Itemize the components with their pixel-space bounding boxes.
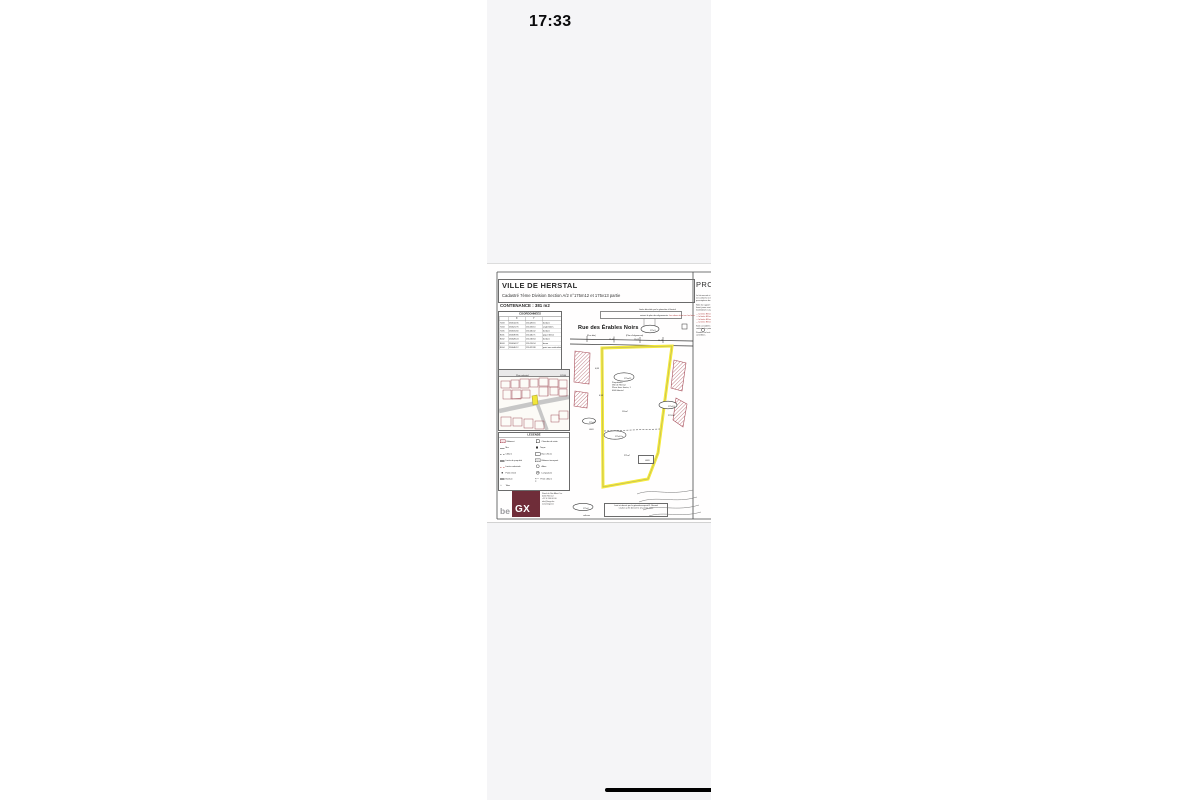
road-dimension: 14,22 xyxy=(658,339,663,342)
coord-remark: bordure xyxy=(542,329,561,333)
legend-item: ×—×Fil de clôture xyxy=(534,476,569,482)
logo-mark: GX xyxy=(515,504,530,515)
coord-y: 151440.42 xyxy=(525,329,542,333)
legend: LEGENDE Bâtiment Mur Clôture Limite de p… xyxy=(498,432,570,491)
building-symbol xyxy=(500,439,506,443)
parcel-area-top: 110m² xyxy=(622,410,628,413)
side-dimension: 6,98 xyxy=(599,394,603,397)
inset-scale: 1/2500 xyxy=(560,374,566,377)
survey-note-line2b: Les arbres étant sur les lieux. xyxy=(669,314,695,317)
coord-y: 151433.10 xyxy=(525,325,542,329)
coordinates-table: COORDONNEES X Y 7003234614.35151428.16bo… xyxy=(498,311,562,371)
coord-y: 151422.88 xyxy=(525,345,542,349)
phone-screenshot: 17:33 xyxy=(487,0,711,800)
bottom-parcel-sub: cultures xyxy=(583,514,590,517)
coord-y: 151446.71 xyxy=(525,333,542,337)
road-lines xyxy=(570,318,693,346)
tree-symbol xyxy=(536,465,540,469)
contenance-label: CONTENANCE : 381 m2 xyxy=(500,303,550,308)
coord-x: 234634.27 xyxy=(508,341,525,345)
bottom-note-line2: Le plan a été dressé le 12 janvier 2022 xyxy=(605,507,667,510)
document-subtitle: Cadastré 7ème Division Section A/2 n°175… xyxy=(502,293,620,298)
coord-x: 234639.85 xyxy=(508,333,525,337)
margin-note: Le lot mesuré et représenté au présent p… xyxy=(696,294,711,302)
coord-y: 151428.16 xyxy=(525,321,542,325)
inset-title: Plan cadastral xyxy=(516,374,529,377)
coord-remark: bordure xyxy=(542,337,561,341)
coord-x: 234646.12 xyxy=(508,345,525,349)
coord-remark: piquet béton xyxy=(542,333,561,337)
left-reference-label: L663 xyxy=(589,428,593,431)
coord-y: 151413.94 xyxy=(525,341,542,345)
title-block: VILLE DE HERSTAL Cadastré 7ème Division … xyxy=(498,279,695,303)
coordinates-row: 8004234646.12151422.88point non matérial… xyxy=(499,345,561,349)
coord-y: 151418.64 xyxy=(525,337,542,341)
owner-line: 4040 Herstal xyxy=(612,389,646,392)
road-parcel-number: 175c3 xyxy=(650,329,655,332)
survey-note-line2a: suivant le plan des alignements. xyxy=(640,314,668,317)
reference-box-label: L683 xyxy=(645,459,649,462)
inspection-chamber-symbol xyxy=(536,439,540,443)
cadastral-plan-image[interactable]: VILLE DE HERSTAL Cadastré 7ème Division … xyxy=(487,263,711,523)
coord-id: 8002 xyxy=(499,337,508,341)
property-limit-symbol xyxy=(500,460,505,461)
coord-id: 8004 xyxy=(499,345,508,349)
legend-left-column: Bâtiment Mur Clôture Limite de propriété… xyxy=(499,438,534,488)
project-label: PROJET xyxy=(696,280,711,289)
parcel-number: 175m12 xyxy=(624,377,631,380)
coord-remark: point non matérialisé xyxy=(542,345,561,349)
coord-x: 234631.60 xyxy=(508,329,525,333)
bottom-note-box: Levé et dressé par le géomètre-expert R.… xyxy=(604,503,668,517)
embedded-building-symbol xyxy=(535,458,541,462)
document-title: VILLE DE HERSTAL xyxy=(502,281,578,290)
wall-symbol xyxy=(500,448,505,449)
inset-map: Plan cadastral 1/2500 xyxy=(498,369,570,431)
coord-id: 7005 xyxy=(499,329,508,333)
slope-symbol: ››› xyxy=(500,484,505,487)
margin-note: Sont considérés comme repris et valeur d… xyxy=(696,324,711,329)
bottom-parcel-number: 175a2 xyxy=(583,507,589,510)
cadastral-limit-symbol xyxy=(500,467,505,468)
manhole-symbol xyxy=(536,447,538,449)
coord-x: 234621.76 xyxy=(508,325,525,329)
street-label: Rue des Érables Noirs xyxy=(578,325,638,331)
home-indicator[interactable] xyxy=(605,788,711,792)
highlighted-parcel-outline xyxy=(602,346,672,487)
curb-symbol xyxy=(500,478,505,480)
inset-map-drawing xyxy=(499,377,569,430)
parcel-area-lower: 271m² xyxy=(624,454,630,457)
inset-highlighted-parcel xyxy=(532,395,538,405)
road-dimension: 19,05 xyxy=(634,338,639,341)
margin-note: Note du rapport : les limites indiquées … xyxy=(696,303,711,311)
coord-x: 234628.24 xyxy=(508,337,525,341)
street-sub-right: (Plan d'alignement) xyxy=(626,334,643,337)
logo-prefix: be xyxy=(500,506,510,516)
coord-remark: bordure xyxy=(542,321,561,325)
coord-x: 234614.35 xyxy=(508,321,525,325)
parcel-number-lower: 175v13 p xyxy=(615,435,623,438)
survey-point-symbol xyxy=(502,472,504,474)
right-parcel-number: 175v13 xyxy=(668,405,675,408)
logo-contact-block: Rond du Roi Albert 1er 4040 Herstal +32 … xyxy=(542,492,576,514)
side-dimension: 4,88 xyxy=(595,367,599,370)
margin-notes: Le lot mesuré et représenté au présent p… xyxy=(696,294,711,484)
planter-symbol xyxy=(535,452,541,455)
parcel-owner-block: Propriétaire: Ville de Herstal Place Jea… xyxy=(612,381,646,405)
fence-symbol xyxy=(500,455,505,456)
coord-id: 7003 xyxy=(499,321,508,325)
wire-symbol: ×—× xyxy=(535,478,540,481)
coord-id: 8001 xyxy=(499,333,508,337)
coord-id: 7004 xyxy=(499,325,508,329)
margin-note-bullet: — la limite EB est décrite xyxy=(696,320,711,323)
contact-line: www.begx.be xyxy=(542,502,576,505)
street-sub-left: (Rue dite) xyxy=(587,334,596,337)
coord-remark: borne xyxy=(542,341,561,345)
road-dimension: 15,45 xyxy=(609,338,614,341)
inset-header: Plan cadastral 1/2500 xyxy=(499,370,569,377)
legend-right-column: Chambre de visite Taque Bac à fleurs Bât… xyxy=(534,438,569,488)
legend-item: ›››Talus xyxy=(499,482,534,488)
begx-logo: GX xyxy=(512,491,540,517)
right-parcel-area: 2797m² xyxy=(668,414,675,417)
screenshot-canvas: { "status_bar": { "time": "17:33" }, "do… xyxy=(0,0,1200,800)
left-parcel-number: 175g2 xyxy=(589,421,595,424)
margin-note: Pendant ce levé les mesures ont été cont… xyxy=(696,331,711,336)
status-bar-time: 17:33 xyxy=(529,13,571,31)
lamppost-symbol xyxy=(536,471,540,475)
coord-id: 8003 xyxy=(499,341,508,345)
survey-note-line2: suivant le plan des alignements. Les arb… xyxy=(640,314,695,317)
coord-remark: angle bâtim. xyxy=(542,325,561,329)
